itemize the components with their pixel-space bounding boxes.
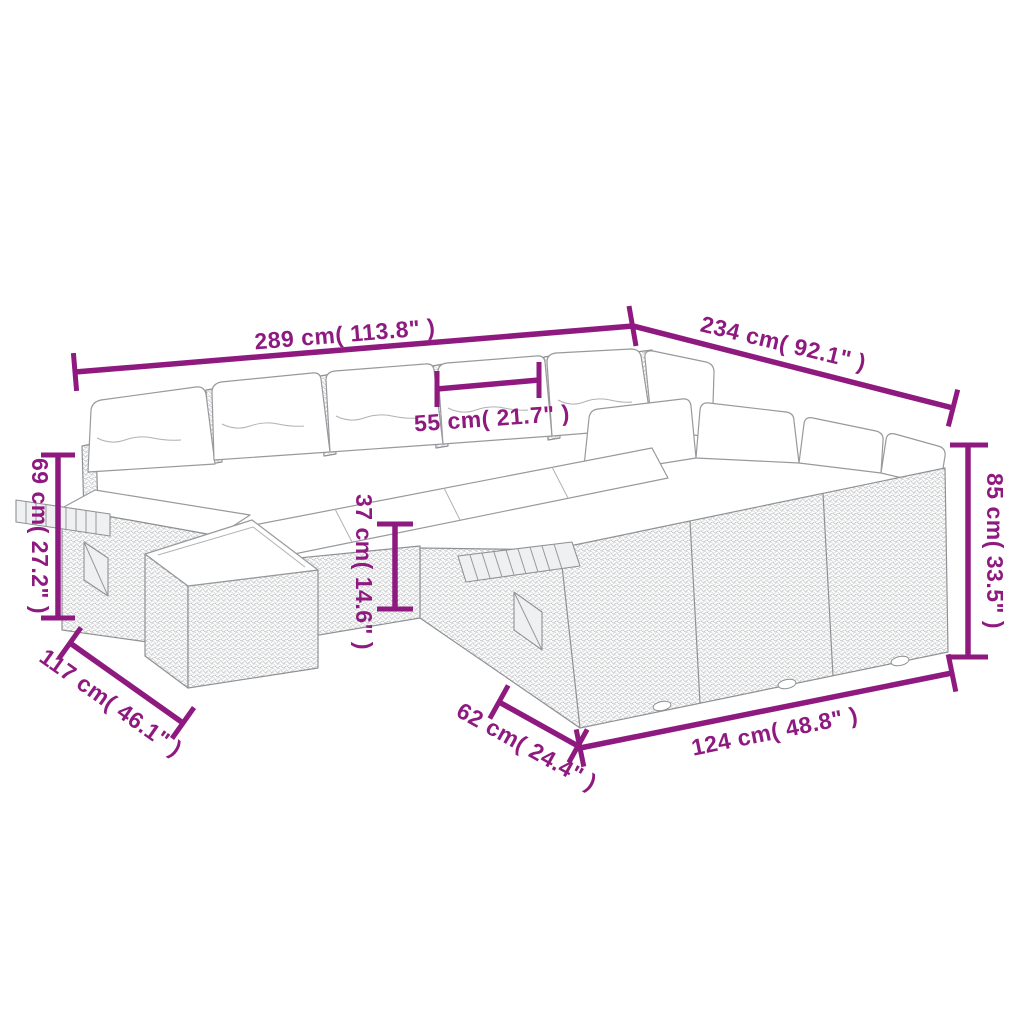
right-row-back-panel (560, 468, 948, 728)
diagram-artwork: 289 cm( 113.8" ) 234 cm( 92.1" ) 55 cm( … (0, 0, 1024, 1024)
dimension-diagram: 289 cm( 113.8" ) 234 cm( 92.1" ) 55 cm( … (0, 0, 1024, 1024)
dimension-armrest-height-label: 69 cm( 27.2" ) (27, 458, 53, 614)
dimension-back-height-label: 85 cm( 33.5" ) (982, 473, 1008, 629)
dimension-back-height: 85 cm( 33.5" ) (950, 445, 1008, 657)
dimension-seat-height-label: 37 cm( 14.6" ) (351, 494, 377, 650)
